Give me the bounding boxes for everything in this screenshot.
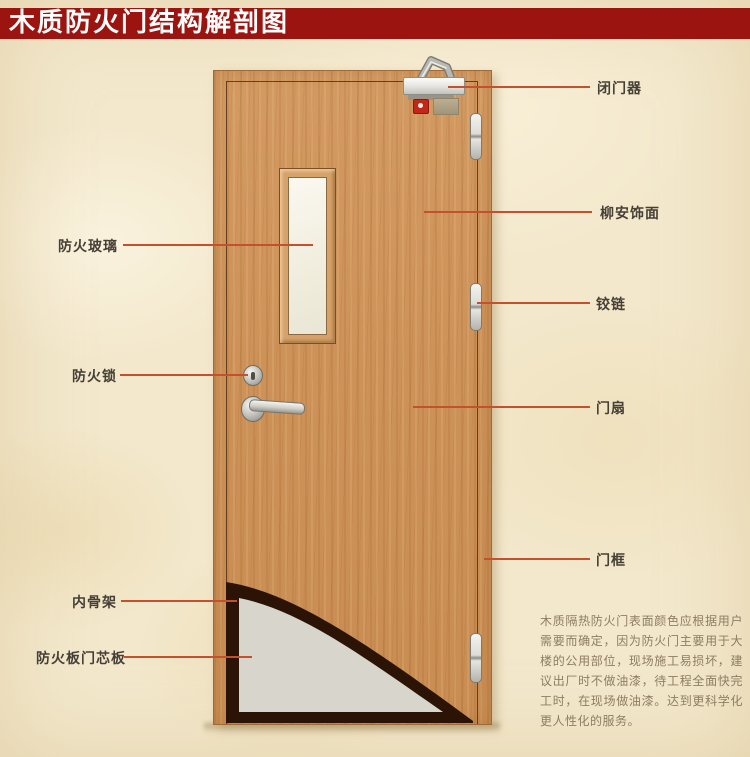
leader-line-core-board (124, 656, 252, 658)
vision-panel-frame (279, 168, 336, 344)
callout-label-veneer: 柳安饰面 (600, 203, 660, 223)
callout-label-hinge: 铰链 (596, 294, 626, 314)
callout-label-door-leaf: 门扇 (596, 398, 626, 418)
leader-line-fire-lock (120, 374, 248, 376)
infographic-canvas: 木质防火门结构解剖图 防火玻璃 防火锁 内骨架 防火板门芯板 闭门器 (0, 0, 750, 757)
hinge-middle (470, 283, 482, 331)
leader-line-door-closer (448, 86, 590, 88)
leader-line-fire-glass (123, 244, 313, 246)
leader-line-hinge (477, 302, 590, 304)
cutaway-section (213, 560, 490, 723)
leader-line-door-leaf (413, 406, 590, 408)
page-title: 木质防火门结构解剖图 (0, 8, 750, 39)
fire-glass (288, 177, 327, 335)
keyhole (251, 372, 255, 380)
callout-label-fire-lock: 防火锁 (72, 366, 117, 386)
callout-label-door-frame: 门框 (596, 550, 626, 570)
callout-label-skeleton: 内骨架 (72, 592, 117, 612)
title-banner: 木质防火门结构解剖图 (0, 8, 750, 39)
leader-line-skeleton (121, 600, 237, 602)
leader-line-door-frame (484, 558, 590, 560)
leader-line-veneer (424, 211, 592, 213)
callout-label-core-board: 防火板门芯板 (36, 648, 126, 668)
alarm-indicator-dot (418, 103, 423, 108)
hinge-top (470, 113, 482, 160)
alarm-indicator (413, 99, 429, 114)
hinge-bottom (470, 633, 482, 683)
cutaway-core (239, 598, 443, 712)
callout-label-door-closer: 闭门器 (597, 78, 642, 98)
callout-label-fire-glass: 防火玻璃 (58, 236, 118, 256)
description-note: 木质隔热防火门表面颜色应根据用户需要而确定，因为防火门主要用于大楼的公用部位，现… (540, 611, 743, 731)
wall-sensor-plate (433, 98, 459, 115)
